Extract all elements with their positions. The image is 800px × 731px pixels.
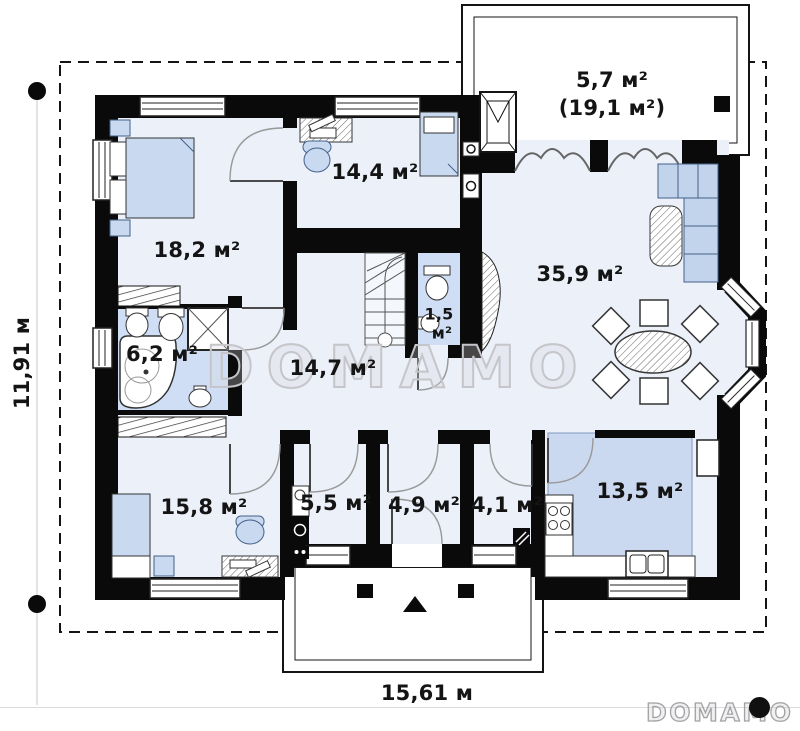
room-label-utility: 5,5 м² (300, 491, 372, 515)
floor-plan-page: 5,7 м² (19,1 м²) 18,2 м² 14,4 м² 35,9 м²… (0, 0, 800, 731)
window (150, 579, 240, 598)
nightstand (154, 556, 174, 576)
pillow (110, 142, 126, 176)
room-label-entry: 4,9 м² (388, 493, 460, 517)
nightstand (110, 220, 130, 236)
porch-structure (283, 567, 543, 672)
brand-logo: DOMAMO (646, 698, 793, 727)
porch-column (357, 584, 373, 598)
toilet (159, 314, 183, 341)
room-label-pantry: 4,1 м² (471, 493, 543, 517)
window (335, 97, 420, 116)
room-label-terrace-total: (19,1 м²) (559, 96, 665, 120)
pillow (112, 556, 150, 578)
room-label-wc-unit: м² (432, 324, 453, 343)
room-label-living: 35,9 м² (537, 262, 624, 286)
terrace-column (714, 96, 730, 112)
room-label-kitchen: 13,5 м² (597, 479, 684, 503)
window (93, 140, 112, 200)
furniture-pantry (513, 528, 530, 545)
room-label-bedroom-top: 18,2 м² (154, 238, 241, 262)
room-label-terrace: 5,7 м² (576, 68, 648, 92)
pillow (110, 180, 126, 214)
dimension-label-width: 15,61 м (381, 681, 473, 705)
window (608, 579, 688, 598)
watermark-text: DOMAMO (205, 333, 590, 401)
toilet (426, 276, 448, 300)
front-door-opening (392, 544, 442, 567)
single-bed (112, 494, 150, 556)
window (472, 546, 516, 565)
pillow (424, 117, 454, 133)
double-bed (126, 138, 194, 218)
boundary-marker-bottom (28, 595, 46, 613)
bidet (126, 313, 148, 337)
porch-column (458, 584, 474, 598)
window (306, 546, 350, 565)
room-label-hall: 14,7 м² (290, 356, 377, 380)
window (140, 97, 225, 116)
corner-sofa (658, 164, 718, 198)
kitchen-counter (545, 556, 695, 577)
brand-logo-dot (749, 697, 770, 718)
room-label-bathroom: 6,2 м² (126, 342, 198, 366)
nightstand (110, 120, 130, 136)
room-label-study: 14,4 м² (332, 160, 419, 184)
dimension-label-height: 11,91 м (10, 317, 34, 409)
room-label-bedroom-bottom: 15,8 м² (161, 495, 248, 519)
room-label-wc-value: 1,5 (425, 305, 454, 324)
window (93, 328, 112, 368)
fridge (697, 440, 719, 476)
boundary-marker-top (28, 82, 46, 100)
